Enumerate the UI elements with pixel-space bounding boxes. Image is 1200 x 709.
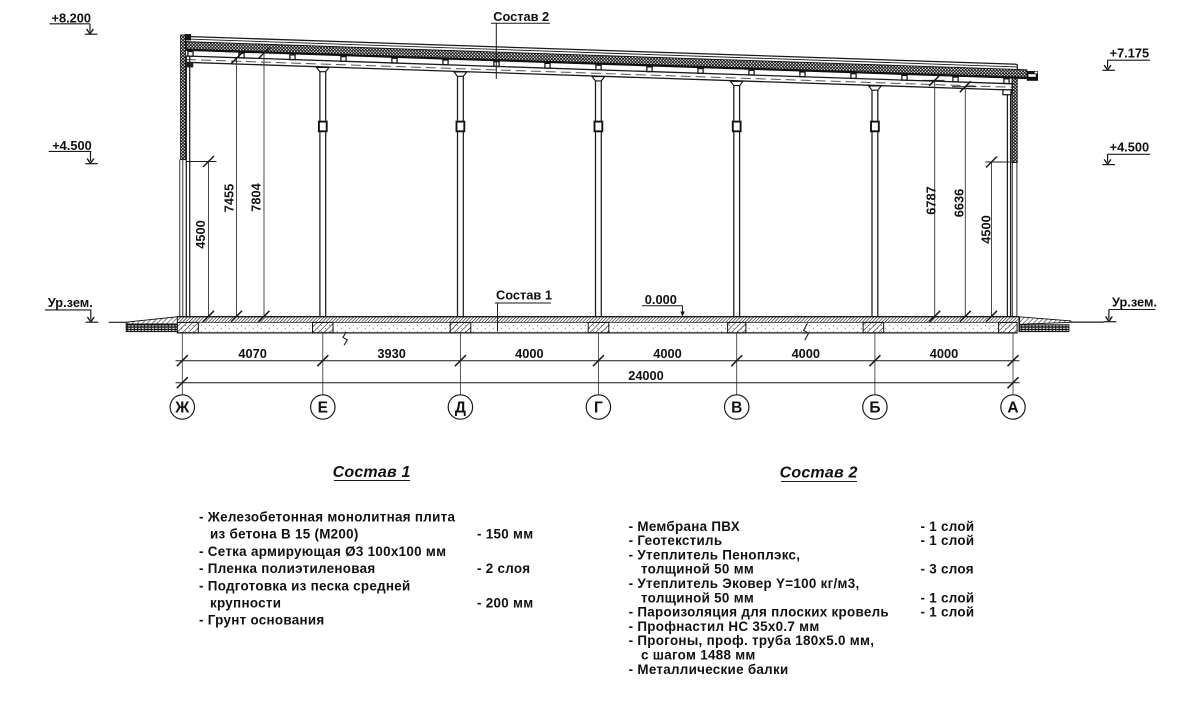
svg-text:с шагом 1488 мм: с шагом 1488 мм [641,648,756,663]
svg-text:Состав 2: Состав 2 [780,465,858,482]
svg-text:4000: 4000 [653,346,681,361]
svg-text:0.000: 0.000 [645,292,677,307]
svg-text:- Утеплитель Пеноплэкс,: - Утеплитель Пеноплэкс, [629,547,801,562]
svg-text:24000: 24000 [628,368,664,383]
svg-text:- 1 слой: - 1 слой [921,519,975,534]
svg-text:Состав 2: Состав 2 [493,9,549,24]
svg-text:4500: 4500 [193,220,208,248]
svg-text:В: В [731,399,742,416]
svg-text:4000: 4000 [930,346,958,361]
svg-text:+4.500: +4.500 [52,138,91,153]
svg-text:крупности: крупности [210,596,281,611]
svg-text:А: А [1007,399,1018,416]
svg-text:Ур.зем.: Ур.зем. [48,295,93,310]
svg-text:из бетона В 15 (М200): из бетона В 15 (М200) [210,527,359,542]
svg-text:4500: 4500 [978,215,993,243]
svg-text:4000: 4000 [515,346,543,361]
svg-text:Ж: Ж [174,399,190,416]
svg-text:- Пленка полиэтиленовая: - Пленка полиэтиленовая [199,561,375,576]
svg-text:- Подготовка из песка средней: - Подготовка из песка средней [199,578,411,593]
svg-text:- Мембрана ПВХ: - Мембрана ПВХ [629,519,740,534]
svg-text:- Металлические балки: - Металлические балки [629,662,789,677]
svg-text:+8.200: +8.200 [52,10,92,25]
svg-text:Состав 1: Состав 1 [496,288,552,303]
svg-text:Состав 1: Состав 1 [333,464,411,481]
svg-text:- Утеплитель Эковер Y=100 кг/м: - Утеплитель Эковер Y=100 кг/м3, [629,576,860,591]
svg-text:- 1 слой: - 1 слой [921,605,975,620]
svg-text:толщиной 50 мм: толщиной 50 мм [641,562,754,577]
svg-text:- 1 слой: - 1 слой [921,590,975,605]
svg-text:- Железобетонная монолитная п: - Железобетонная монолитная плита [199,510,455,525]
svg-text:- Сетка армирующая Ø3 100х100: - Сетка армирующая Ø3 100х100 мм [199,544,446,559]
svg-text:Д: Д [455,399,466,416]
svg-text:6636: 6636 [952,189,967,217]
svg-text:- Грунт основания: - Грунт основания [199,613,325,628]
svg-text:- 3 слоя: - 3 слоя [921,562,974,577]
svg-text:+7.175: +7.175 [1110,46,1150,61]
svg-text:7804: 7804 [248,182,263,211]
svg-text:Б: Б [869,399,880,416]
svg-text:толщиной 50 мм: толщиной 50 мм [641,590,754,605]
svg-text:3930: 3930 [377,346,405,361]
svg-text:- 2 слоя: - 2 слоя [477,561,530,576]
svg-text:4070: 4070 [238,346,266,361]
svg-text:Ур.зем.: Ур.зем. [1112,294,1157,309]
svg-text:Г: Г [594,399,603,416]
svg-text:- Пароизоляция для плоских кро: - Пароизоляция для плоских кровель [629,605,889,620]
svg-text:Е: Е [318,399,328,416]
svg-text:6787: 6787 [924,186,939,214]
svg-text:- 200 мм: - 200 мм [477,596,533,611]
svg-text:+4.500: +4.500 [1110,140,1150,155]
svg-text:- Геотекстиль: - Геотекстиль [629,533,723,548]
svg-text:- 150 мм: - 150 мм [477,527,533,542]
svg-text:7455: 7455 [222,184,237,212]
svg-text:- Профнастил НС 35х0.7 мм: - Профнастил НС 35х0.7 мм [629,619,820,634]
svg-text:- Прогоны, проф. труба 180х5.0: - Прогоны, проф. труба 180х5.0 мм, [629,633,875,648]
svg-text:4000: 4000 [792,346,820,361]
svg-text:- 1 слой: - 1 слой [921,533,975,548]
